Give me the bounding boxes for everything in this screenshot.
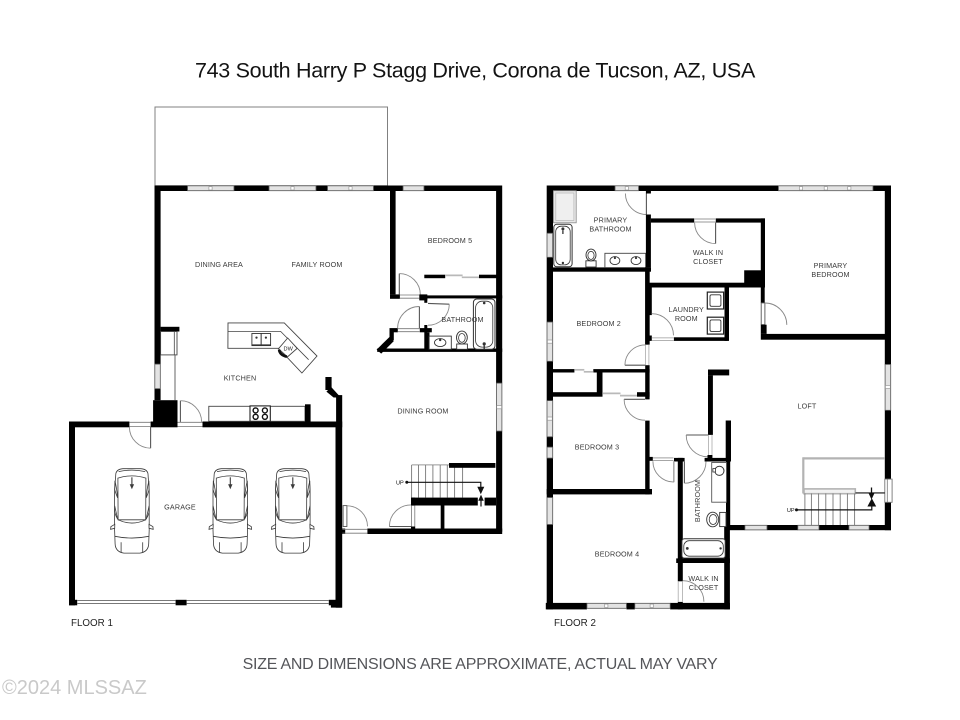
svg-text:CLOSET: CLOSET xyxy=(693,257,723,266)
svg-text:PRIMARY: PRIMARY xyxy=(814,261,848,270)
svg-text:FAMILY ROOM: FAMILY ROOM xyxy=(292,260,343,269)
svg-text:BATHROOM: BATHROOM xyxy=(441,315,483,324)
svg-text:FLOOR 2: FLOOR 2 xyxy=(554,618,596,629)
svg-text:DINING AREA: DINING AREA xyxy=(195,260,243,269)
svg-text:BATHROOM: BATHROOM xyxy=(589,225,631,234)
svg-text:DW: DW xyxy=(284,347,294,353)
svg-text:LAUNDRY: LAUNDRY xyxy=(669,305,704,314)
svg-text:CLOSET: CLOSET xyxy=(689,583,719,592)
svg-text:BEDROOM 3: BEDROOM 3 xyxy=(575,442,619,451)
svg-text:BATHROOM: BATHROOM xyxy=(693,480,702,522)
svg-text:FLOOR 1: FLOOR 1 xyxy=(71,618,113,629)
svg-text:BEDROOM 5: BEDROOM 5 xyxy=(428,236,472,245)
svg-text:ROOM: ROOM xyxy=(675,314,698,323)
svg-text:PRIMARY: PRIMARY xyxy=(594,216,628,225)
svg-text:BEDROOM 4: BEDROOM 4 xyxy=(595,549,639,558)
svg-text:©2024 MLSSAZ: ©2024 MLSSAZ xyxy=(2,677,147,699)
svg-text:UP: UP xyxy=(787,508,795,514)
svg-text:SIZE AND DIMENSIONS ARE APPROX: SIZE AND DIMENSIONS ARE APPROXIMATE, ACT… xyxy=(243,656,718,673)
svg-text:DINING ROOM: DINING ROOM xyxy=(397,407,448,416)
svg-text:WALK IN: WALK IN xyxy=(693,248,723,257)
svg-text:UP: UP xyxy=(396,481,404,487)
svg-text:KITCHEN: KITCHEN xyxy=(224,374,257,383)
svg-text:GARAGE: GARAGE xyxy=(164,503,196,512)
svg-text:BEDROOM 2: BEDROOM 2 xyxy=(576,319,620,328)
svg-text:LOFT: LOFT xyxy=(798,402,817,411)
svg-text:BEDROOM: BEDROOM xyxy=(811,270,849,279)
svg-text:743 South Harry P Stagg Drive,: 743 South Harry P Stagg Drive, Corona de… xyxy=(195,59,756,83)
svg-text:WALK IN: WALK IN xyxy=(688,574,718,583)
